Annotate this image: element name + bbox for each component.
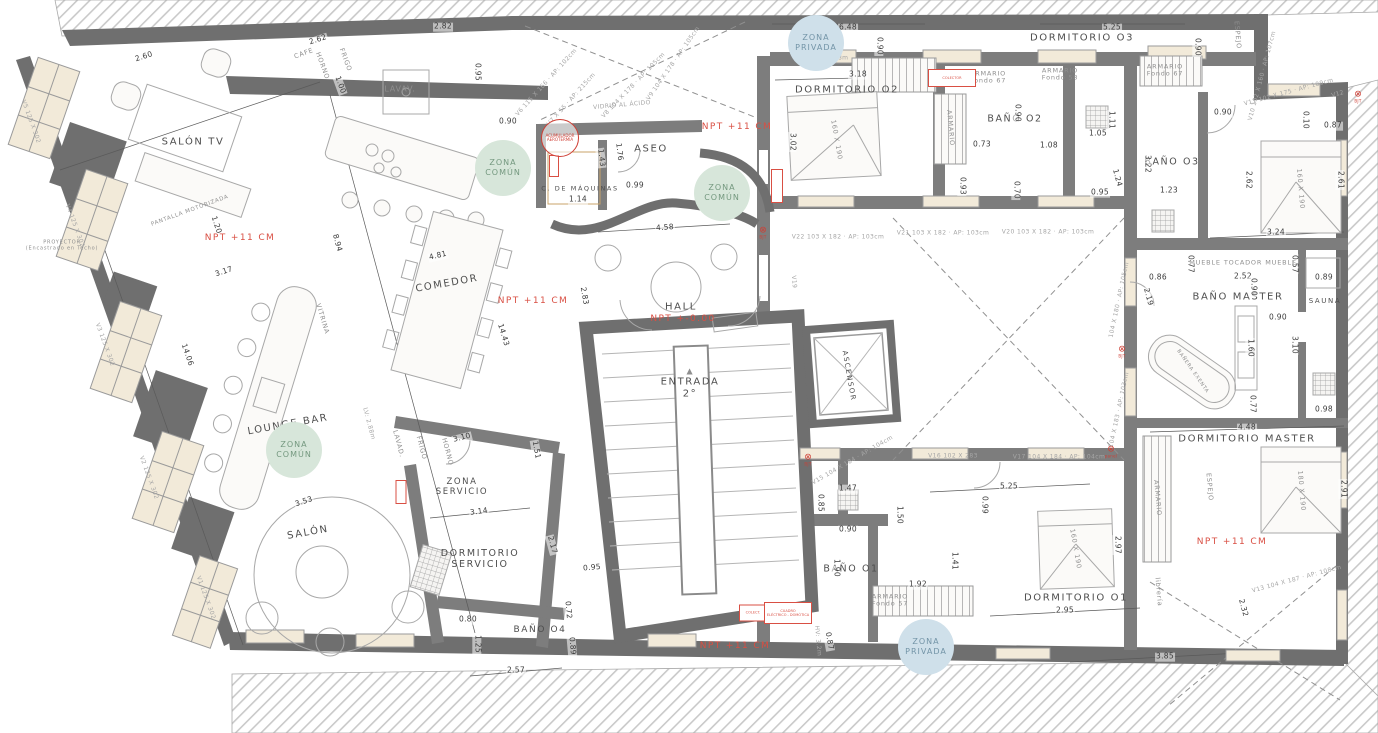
dim-label: 1.41: [950, 551, 959, 571]
zone-comun-lounge-text: ZONA: [280, 440, 307, 450]
dim-label: 0.85: [816, 493, 825, 513]
dim-label: 1.05: [1088, 130, 1108, 139]
dim-label: 5.25: [1102, 24, 1122, 33]
tag-label: V2 125 X 302: [137, 455, 159, 500]
dim-label: 0.72: [563, 600, 573, 621]
colector-entrada: COLECT.: [739, 605, 767, 622]
zone-comun-lounge: ZONACOMÚN: [266, 422, 322, 478]
zone-comun-lounge-text: COMÚN: [276, 450, 312, 460]
colector-o2: COLECTOR: [928, 69, 976, 87]
dim-label: 5.25: [999, 483, 1019, 492]
room-ascensor: ASCENSOR: [841, 350, 858, 402]
tag-label: V12: [1331, 90, 1345, 100]
cuadro-electrico: CUADROELÉCTRICO - DOMÓTICA: [764, 602, 812, 624]
dim-label: 3.02: [788, 132, 797, 152]
tag-label: V17 104 X 184 · AP: 104cm: [1013, 455, 1105, 462]
bjt-marker: ⊗BJT: [1118, 346, 1126, 359]
fixture-mueble-2: MUEBLE: [1265, 259, 1296, 266]
dim-label: 0.87: [823, 630, 835, 651]
dim-label: 2.83: [578, 285, 590, 306]
tag-label: V19: [789, 275, 797, 289]
tag-label: V1 125 X 302: [194, 575, 216, 620]
fixture-armario-o2b: ARMARIOFondo 58: [1042, 68, 1078, 83]
tag-label: 104 X 180 · AP: 105cm: [1109, 262, 1132, 339]
riser-maquinas: [549, 155, 559, 177]
zone-privada-bottom: ZONAPRIVADA: [898, 619, 954, 675]
dim-label: 1.92: [908, 581, 928, 590]
zone-comun-cocina-text: ZONA: [489, 158, 516, 168]
dim-label: 0.89: [1314, 274, 1334, 283]
dim-label: 2.62: [1244, 170, 1253, 190]
bjt-marker: ⊗BJT: [1354, 91, 1362, 104]
tag-label: HV: 3.2m: [812, 625, 822, 656]
fixture-libreria: librería: [1153, 577, 1163, 607]
dim-label: 1.24: [1110, 167, 1123, 188]
room-entrada-line: ENTRADA: [661, 377, 720, 389]
dim-label: 0.90: [1249, 277, 1258, 297]
dim-label: 4.81: [427, 250, 448, 263]
dim-label: 4.48: [1237, 424, 1257, 433]
dim-label: 0.90: [1268, 314, 1288, 323]
colector-o2-text: COLECTOR: [942, 76, 961, 80]
entrada-arrow: ▲: [687, 366, 694, 375]
dim-label: 2.62: [307, 33, 329, 47]
fixture-tocador: TOCADOR: [1224, 259, 1262, 266]
dim-label: 2.97: [1113, 535, 1122, 555]
dim-label: 1.50: [895, 505, 904, 525]
tag-label: VIDRIO AL ÁCIDO: [593, 100, 651, 112]
dim-label: 2.57: [506, 667, 526, 676]
fixture-cama-o3: 160 X 190: [1295, 168, 1306, 209]
fixture-armario-o1-line: Fondo 57: [872, 601, 908, 608]
room-dormitorio-servicio-line: SERVICIO: [441, 560, 520, 571]
bjt-marker-label: panel: [1105, 455, 1118, 459]
fixture-cama-o1: 160 X 190: [1068, 528, 1082, 569]
dim-label: 0.77: [1248, 394, 1257, 414]
dim-label: 2.32: [1236, 597, 1249, 618]
dim-label: 0.99: [980, 495, 989, 515]
dim-label: 0.95: [582, 563, 603, 573]
dim-label: 2.60: [133, 50, 155, 64]
dim-label: 2.91: [1339, 479, 1348, 499]
dim-label: 3.17: [213, 265, 235, 279]
dim-label: 1.00: [333, 74, 348, 96]
dim-label: 0.90: [498, 118, 518, 127]
bjt-marker: ⊗BJT: [804, 454, 812, 467]
zone-privada-bottom-text: ZONA: [912, 637, 939, 647]
room-dormitorio-o1: DORMITORIO O1: [1024, 592, 1128, 604]
room-salon: SALÓN: [286, 524, 329, 543]
room-dormitorio-master: DORMITORIO MASTER: [1178, 433, 1315, 445]
room-zona-servicio-line: SERVICIO: [436, 488, 488, 498]
dim-label: 0.87: [1323, 122, 1343, 131]
dim-label: 1.14: [568, 196, 588, 205]
dim-label: 1.43: [596, 148, 607, 169]
dim-label: 2.61: [1336, 170, 1345, 190]
dim-label: 3.10: [451, 431, 472, 444]
dim-label: 1.51: [530, 439, 542, 460]
tag-label: V15 104 X 184 · AP: 104cm: [811, 435, 895, 487]
zone-privada-bottom-text: PRIVADA: [905, 647, 947, 657]
fixture-banera: BAÑERA EXENTA: [1175, 349, 1210, 395]
riser-hall: [771, 169, 783, 203]
bjt-marker-label: BJT: [1118, 355, 1126, 359]
fixture-armario-o3: ARMARIOFondo 67: [1147, 64, 1183, 79]
fixture-armario-vert: ARMARIO: [945, 110, 956, 147]
fixture-proyector-line: (Encastrado en Techo): [26, 246, 98, 252]
room-dormitorio-o2: DORMITORIO O2: [795, 84, 899, 96]
tag-label: V22 103 X 182 · AP: 103cm: [792, 235, 884, 242]
dim-label: 1.47: [838, 485, 858, 494]
bjt-marker: ⊗panel: [1105, 446, 1118, 459]
fixture-armario-master: ARMARIO: [1152, 480, 1163, 517]
npt-label: NPT +11 CM: [702, 122, 772, 132]
tag-label: 104 X 183 · AP: 103cm: [1109, 372, 1132, 449]
room-dormitorio-o3: DORMITORIO O3: [1030, 32, 1134, 44]
dim-label: 1.76: [614, 142, 625, 163]
dim-label: 3.14: [469, 506, 490, 517]
room-bano-master: BAÑO MASTER: [1192, 291, 1283, 303]
npt-label: NPT +-0.00: [650, 314, 715, 324]
dim-label: 3.85: [1155, 653, 1175, 662]
dim-label: 0.98: [1314, 406, 1334, 415]
colector-entrada-text: COLECT.: [746, 611, 761, 615]
dim-label: 0.95: [1090, 189, 1110, 198]
room-aseo: ASEO: [634, 143, 668, 155]
room-zona-servicio: ZONASERVICIO: [436, 478, 488, 498]
zone-privada-top-text: PRIVADA: [795, 43, 837, 53]
dim-label: 1.25: [473, 634, 482, 654]
dim-label: 1.23: [1159, 187, 1179, 196]
fixture-cama-o2: 160 X 190: [829, 119, 843, 160]
fixture-lavadora: LAVAD.: [391, 429, 406, 458]
bjt-marker-label: BJT: [759, 236, 767, 240]
acumulador-aerotermia-text: AEROTERMIA: [547, 138, 573, 142]
fixture-horno: HORNO: [314, 51, 331, 80]
npt-label: NPT +11 CM: [1197, 537, 1267, 547]
fixture-armario-o1: ARMARIOFondo 57: [872, 594, 908, 609]
fixture-cafe: CAFE: [293, 47, 314, 61]
floorplan-labels: SALÓN TVCOMEDORLOUNGE BARSALÓNASEOC. DE …: [0, 0, 1378, 733]
dim-label: 4.58: [655, 223, 675, 233]
dim-label: 2.95: [1055, 607, 1075, 616]
room-sauna: SAUNA: [1309, 297, 1342, 305]
fixture-armario-o3-line: Fondo 67: [1147, 71, 1183, 78]
acumulador-aerotermia: ACUMULADORAEROTERMIA: [541, 119, 579, 157]
zone-comun-cocina-text: COMÚN: [485, 168, 521, 178]
zone-comun-hall-text: COMÚN: [704, 193, 740, 203]
fixture-proyector: PROYECTOR(Encastrado en Techo): [26, 240, 98, 252]
bjt-marker: ⊗BJT: [759, 227, 767, 240]
dim-label: 0.93: [958, 176, 967, 196]
room-comedor: COMEDOR: [415, 273, 480, 295]
dim-label: 0.95: [473, 62, 482, 82]
zone-comun-cocina: ZONACOMÚN: [475, 140, 531, 196]
zone-comun-hall-text: ZONA: [708, 183, 735, 193]
dim-label: 0.90: [875, 36, 884, 56]
room-entrada: ENTRADA2°: [661, 377, 720, 400]
tag-label: V3 125 X 302: [93, 322, 115, 367]
room-c-maquinas: C. DE MÁQUINAS: [541, 185, 618, 192]
dim-label: 14.43: [495, 322, 511, 348]
dim-label: 3.18: [848, 71, 868, 80]
dim-label: 0.70: [1012, 180, 1021, 200]
dim-label: 8.94: [330, 232, 343, 253]
dim-label: 0.90: [1193, 37, 1202, 57]
dim-label: 0.86: [1148, 274, 1168, 283]
dim-label: 3.10: [1290, 335, 1299, 355]
dim-label: 14.06: [179, 342, 195, 368]
fixture-armario-o2b-line: Fondo 58: [1042, 75, 1078, 82]
tag-label: V16 102 X 283: [928, 454, 978, 461]
tag-label: V10 102 X 160 · AP: 107cm: [1248, 30, 1279, 121]
tag-label: V21 103 X 182 · AP: 103cm: [897, 231, 989, 238]
dim-label: 0.99: [625, 182, 645, 191]
cuadro-electrico-text: ELÉCTRICO - DOMÓTICA: [767, 613, 809, 617]
room-bano-o4: BAÑO O4: [513, 625, 566, 635]
tag-label: V20 103 X 182 · AP: 103cm: [1002, 230, 1094, 237]
dim-label: 0.90: [1013, 103, 1022, 123]
fixture-espejo-o3: ESPEJO: [1232, 21, 1242, 50]
dim-label: 3.24: [1266, 229, 1286, 238]
dim-label: 1.08: [1039, 142, 1059, 151]
room-dormitorio-servicio: DORMITORIOSERVICIO: [441, 549, 520, 571]
tag-label: V13 104 X 187 · AP: 108cm: [1251, 565, 1342, 596]
zone-comun-hall: ZONACOMÚN: [694, 165, 750, 221]
fixture-frigo: FRIGO: [337, 47, 352, 72]
tag-label: LV: 2.88m: [360, 407, 375, 441]
fixture-frigo-servicio: FRIGO: [414, 435, 428, 460]
room-entrada-line: 2°: [661, 388, 720, 400]
dim-label: 0.89: [567, 636, 577, 657]
room-bano-o3: BAÑO O3: [1144, 158, 1199, 169]
dim-label: 2.17: [545, 534, 558, 555]
floor-plan: SALÓN TVCOMEDORLOUNGE BARSALÓNASEOC. DE …: [0, 0, 1378, 733]
bjt-marker-label: BJT: [804, 463, 812, 467]
room-salon-tv: SALÓN TV: [162, 136, 225, 148]
bjt-marker-label: BJT: [1354, 100, 1362, 104]
dim-label: 2.82: [433, 23, 453, 32]
dim-label: 3.53: [293, 495, 315, 509]
npt-label: NPT +11 CM: [498, 296, 568, 306]
fixture-vitrina: VITRINA: [314, 303, 330, 335]
fixture-lavavajillas: LAVAV.: [384, 84, 415, 93]
fixture-espejo-master: ESPEJO: [1204, 473, 1214, 502]
npt-label: NPT +11 CM: [205, 233, 275, 243]
zone-privada-top-text: ZONA: [802, 33, 829, 43]
dim-label: 0.90: [838, 526, 858, 535]
dim-label: 0.90: [1213, 109, 1233, 118]
dim-label: 0.73: [972, 141, 992, 150]
npt-label: NPT +11 CM: [700, 641, 770, 651]
dim-label: 1.60: [1246, 338, 1255, 358]
dim-label: 3.22: [1143, 154, 1152, 174]
riser-servicio: [396, 480, 407, 504]
dim-label: 2.19: [1141, 286, 1154, 307]
tag-label: V5 125 X 302: [19, 99, 41, 144]
dim-label: 0.80: [458, 616, 478, 625]
fixture-cama-master: 180 X 190: [1296, 470, 1307, 511]
room-hall: HALL: [665, 301, 697, 313]
dim-label: 1.90: [832, 558, 841, 578]
dim-label: 1.11: [1107, 110, 1116, 130]
dim-label: 0.10: [1301, 110, 1310, 130]
fixture-mueble-1: MUEBLE: [1189, 259, 1220, 266]
zone-privada-top: ZONAPRIVADA: [788, 15, 844, 71]
